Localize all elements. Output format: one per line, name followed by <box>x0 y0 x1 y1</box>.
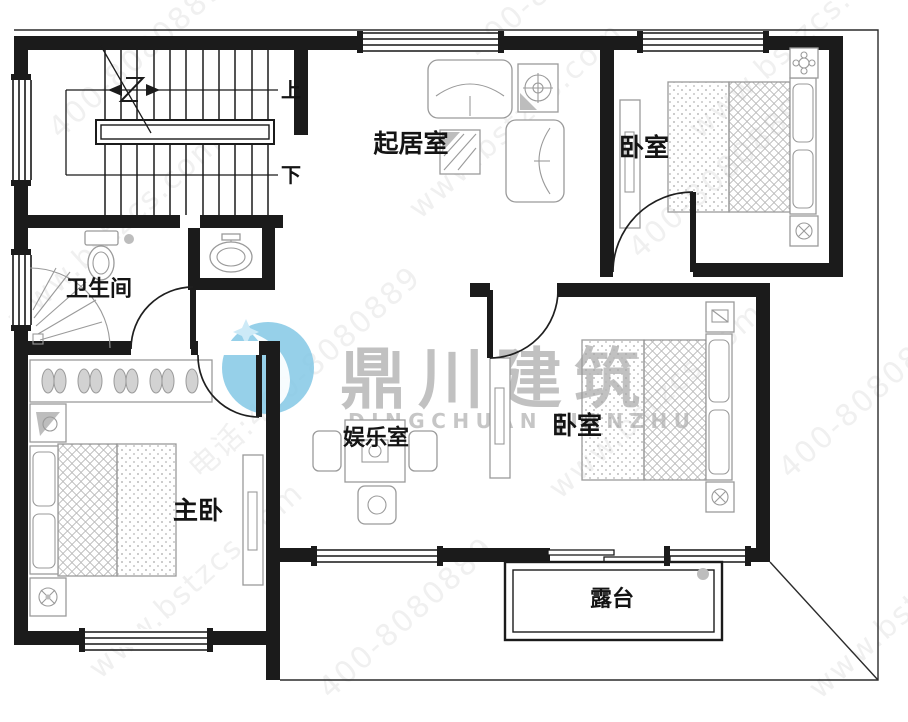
chair-right-icon <box>409 431 437 471</box>
double-bed-icon <box>30 444 176 576</box>
terrace-dot <box>697 568 709 580</box>
chair-left-icon <box>313 431 341 471</box>
room-label-bedroom-top: 卧室 <box>619 133 669 162</box>
sink-icon <box>210 234 252 272</box>
nightstand-plant-icon <box>30 578 66 616</box>
room-label-living: 起居室 <box>373 129 448 158</box>
door-bathroom <box>131 287 196 349</box>
toilet-icon <box>85 231 134 280</box>
stove-table-icon <box>518 64 558 112</box>
floor-plan-page: www.bstzcs.com www.bstzcs.com 电话:400-808… <box>0 0 908 722</box>
stair-down-label: 下 <box>281 163 301 187</box>
room-label-terrace: 露台 <box>590 586 634 612</box>
tv-cabinet-icon <box>243 455 263 585</box>
nightstand-icon <box>30 404 66 442</box>
wardrobe-icon <box>30 360 212 402</box>
floor-plan-canvas: www.bstzcs.com www.bstzcs.com 电话:400-808… <box>0 0 908 722</box>
nightstand-book-icon <box>706 302 734 332</box>
nightstand-plant-icon <box>706 482 734 512</box>
watermark-phone: 400-8080889 <box>772 310 908 486</box>
sofa-side-icon <box>506 120 564 202</box>
nightstand-plant-icon <box>790 216 818 246</box>
stair-up-label: 上 <box>281 78 301 102</box>
watermark-site: www.bstzcs.com <box>802 495 908 706</box>
chair-bottom-icon <box>358 486 396 524</box>
room-label-bathroom: 卫生间 <box>66 277 132 302</box>
room-label-bedroom-mid: 卧室 <box>552 411 602 440</box>
nightstand-flower-icon <box>790 48 818 78</box>
double-bed-icon <box>582 334 732 480</box>
sofa-icon <box>428 60 512 118</box>
master-bedroom-furniture <box>30 360 263 616</box>
stair-landing-rail <box>96 120 274 144</box>
room-label-entertainment: 娱乐室 <box>343 425 409 451</box>
room-label-master: 主卧 <box>173 496 223 525</box>
tv-cabinet-icon <box>620 100 640 228</box>
arrow-right-icon <box>146 84 160 96</box>
tv-cabinet-icon <box>490 358 510 478</box>
